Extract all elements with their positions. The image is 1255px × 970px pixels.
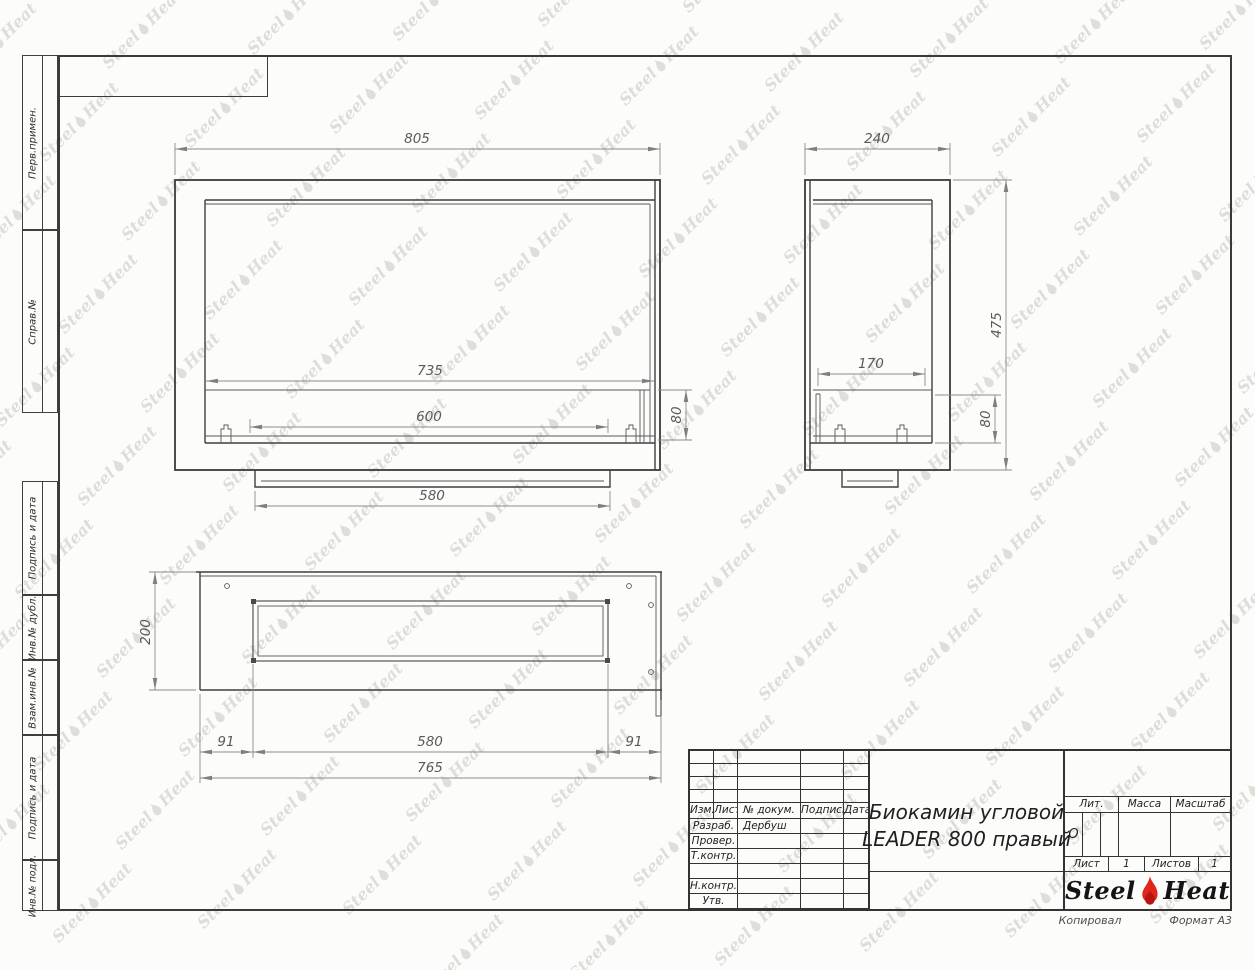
drawing-sheet: SteelHeatSteelHeatSteelHeatSteelHeatStee… <box>0 0 1255 970</box>
rev-cell <box>714 790 738 803</box>
rev-header-doc: № докум. <box>738 803 801 819</box>
sign-row: Провер. <box>690 834 868 849</box>
sign-row-signature-cell <box>801 819 844 834</box>
mount-hole <box>627 584 632 589</box>
sign-row-date-cell <box>844 879 868 894</box>
sign-row-name <box>738 834 801 849</box>
mass-label: Масса <box>1119 797 1171 813</box>
dim-front-overall-width: 805 <box>404 131 430 147</box>
copied-by-label: Копировал <box>1030 914 1150 927</box>
mount-hole <box>225 584 230 589</box>
format-label: Формат А3 <box>1160 914 1232 927</box>
rev-cell <box>844 764 868 777</box>
sign-row-date-cell <box>844 894 868 909</box>
dim-side-burner-depth: 170 <box>858 356 884 372</box>
lit-cell-2 <box>1083 813 1101 857</box>
title-block-left: Изм. Лист № докум. Подпись Дата Разраб.Д… <box>690 751 870 909</box>
rev-header-sign: Подпись <box>801 803 844 819</box>
dim-front-base-width: 580 <box>419 488 445 504</box>
rev-cell <box>801 751 844 764</box>
lit-cell-3 <box>1101 813 1119 857</box>
rev-cell <box>714 777 738 790</box>
revision-header: Изм. Лист № докум. Подпись Дата <box>690 803 868 819</box>
rev-cell <box>801 790 844 803</box>
rev-cell <box>844 751 868 764</box>
rev-header-list: Лист <box>714 803 738 819</box>
sign-row-signature-cell <box>801 894 844 909</box>
sign-row: Разраб.Дербуш <box>690 819 868 834</box>
company-logo: Steel Heat <box>1065 872 1230 909</box>
sign-row-label: Т.контр. <box>690 849 738 864</box>
sign-row-label: Провер. <box>690 834 738 849</box>
sign-row: Т.контр. <box>690 849 868 864</box>
sign-row-label: Н.контр. <box>690 879 738 894</box>
rev-header-date: Дата <box>844 803 868 819</box>
lit-mass-scale-header: Лит. Масса Масштаб <box>1065 797 1230 813</box>
rev-cell <box>714 764 738 777</box>
sign-row-signature-cell <box>801 864 844 879</box>
dim-top-left-offset: 91 <box>217 734 234 750</box>
rev-cell <box>844 777 868 790</box>
doc-designation-cell <box>1065 751 1230 797</box>
dim-front-opening-width: 735 <box>417 363 443 379</box>
mount-hole <box>649 603 654 608</box>
doc-title-line1: Биокамин угловой <box>869 799 1064 826</box>
rev-cell <box>690 790 714 803</box>
sheet-label: Лист <box>1065 857 1109 872</box>
sign-row-name <box>738 864 801 879</box>
sign-row-name <box>738 894 801 909</box>
sign-row-signature-cell <box>801 834 844 849</box>
lit-mass-scale-values: О <box>1065 813 1230 857</box>
sign-row-label: Разраб. <box>690 819 738 834</box>
rev-cell <box>738 764 801 777</box>
scale-value <box>1171 813 1230 857</box>
sign-row: Н.контр. <box>690 879 868 894</box>
doc-title-line2: LEADER 800 правый <box>862 826 1071 853</box>
sign-row-signature-cell <box>801 849 844 864</box>
rev-cell <box>690 751 714 764</box>
logo-heat-text: Heat <box>1163 876 1230 905</box>
logo-steel-text: Steel <box>1065 876 1136 905</box>
mass-value <box>1119 813 1171 857</box>
title-block-right: Лит. Масса Масштаб О Лист 1 Листов 1 Ste… <box>1065 751 1230 909</box>
doc-title-cell: Биокамин угловой LEADER 800 правый <box>870 751 1065 909</box>
rev-cell <box>844 790 868 803</box>
rev-cell <box>738 777 801 790</box>
sign-row-name <box>738 879 801 894</box>
signature-rows: Разраб.ДербушПровер.Т.контр.Н.контр.Утв. <box>690 819 868 909</box>
logo-flame-icon <box>1139 876 1161 905</box>
sheet-row: Лист 1 Листов 1 <box>1065 857 1230 872</box>
rev-cell <box>801 764 844 777</box>
revision-table <box>690 751 868 803</box>
dim-side-overall-height: 475 <box>989 312 1005 338</box>
dim-top-slot-width: 580 <box>417 734 443 750</box>
rev-header-izm: Изм. <box>690 803 714 819</box>
sign-row-name: Дербуш <box>738 819 801 834</box>
dim-front-burner-height: 80 <box>669 406 685 423</box>
rev-cell <box>801 777 844 790</box>
sign-row-name <box>738 849 801 864</box>
title-block: Изм. Лист № докум. Подпись Дата Разраб.Д… <box>688 749 1232 911</box>
dim-front-burner-width: 600 <box>416 409 442 425</box>
side-view <box>805 180 950 487</box>
rev-cell <box>738 751 801 764</box>
scale-label: Масштаб <box>1171 797 1230 813</box>
mount-hole <box>649 670 654 675</box>
sheets-value: 1 <box>1199 857 1230 872</box>
front-view <box>175 180 660 487</box>
dim-side-overall-depth: 240 <box>864 131 890 147</box>
dimensions: 805 735 600 580 80 240 475 170 80 <box>138 131 1012 783</box>
top-view <box>196 572 662 716</box>
sign-row-signature-cell <box>801 879 844 894</box>
dim-side-burner-height: 80 <box>978 410 994 427</box>
lit-label: Лит. <box>1065 797 1119 813</box>
lit-value: О <box>1065 813 1083 857</box>
sign-row-label: Утв. <box>690 894 738 909</box>
sign-row-date-cell <box>844 864 868 879</box>
sheet-value: 1 <box>1109 857 1145 872</box>
sign-row: Утв. <box>690 894 868 909</box>
dim-top-overall-width: 765 <box>417 760 443 776</box>
sign-row <box>690 864 868 879</box>
dim-top-overall-depth: 200 <box>138 619 154 645</box>
rev-cell <box>714 751 738 764</box>
dim-top-right-offset: 91 <box>625 734 642 750</box>
sheets-label: Листов <box>1145 857 1199 872</box>
rev-cell <box>690 777 714 790</box>
rev-cell <box>690 764 714 777</box>
rev-cell <box>738 790 801 803</box>
sign-row-label <box>690 864 738 879</box>
